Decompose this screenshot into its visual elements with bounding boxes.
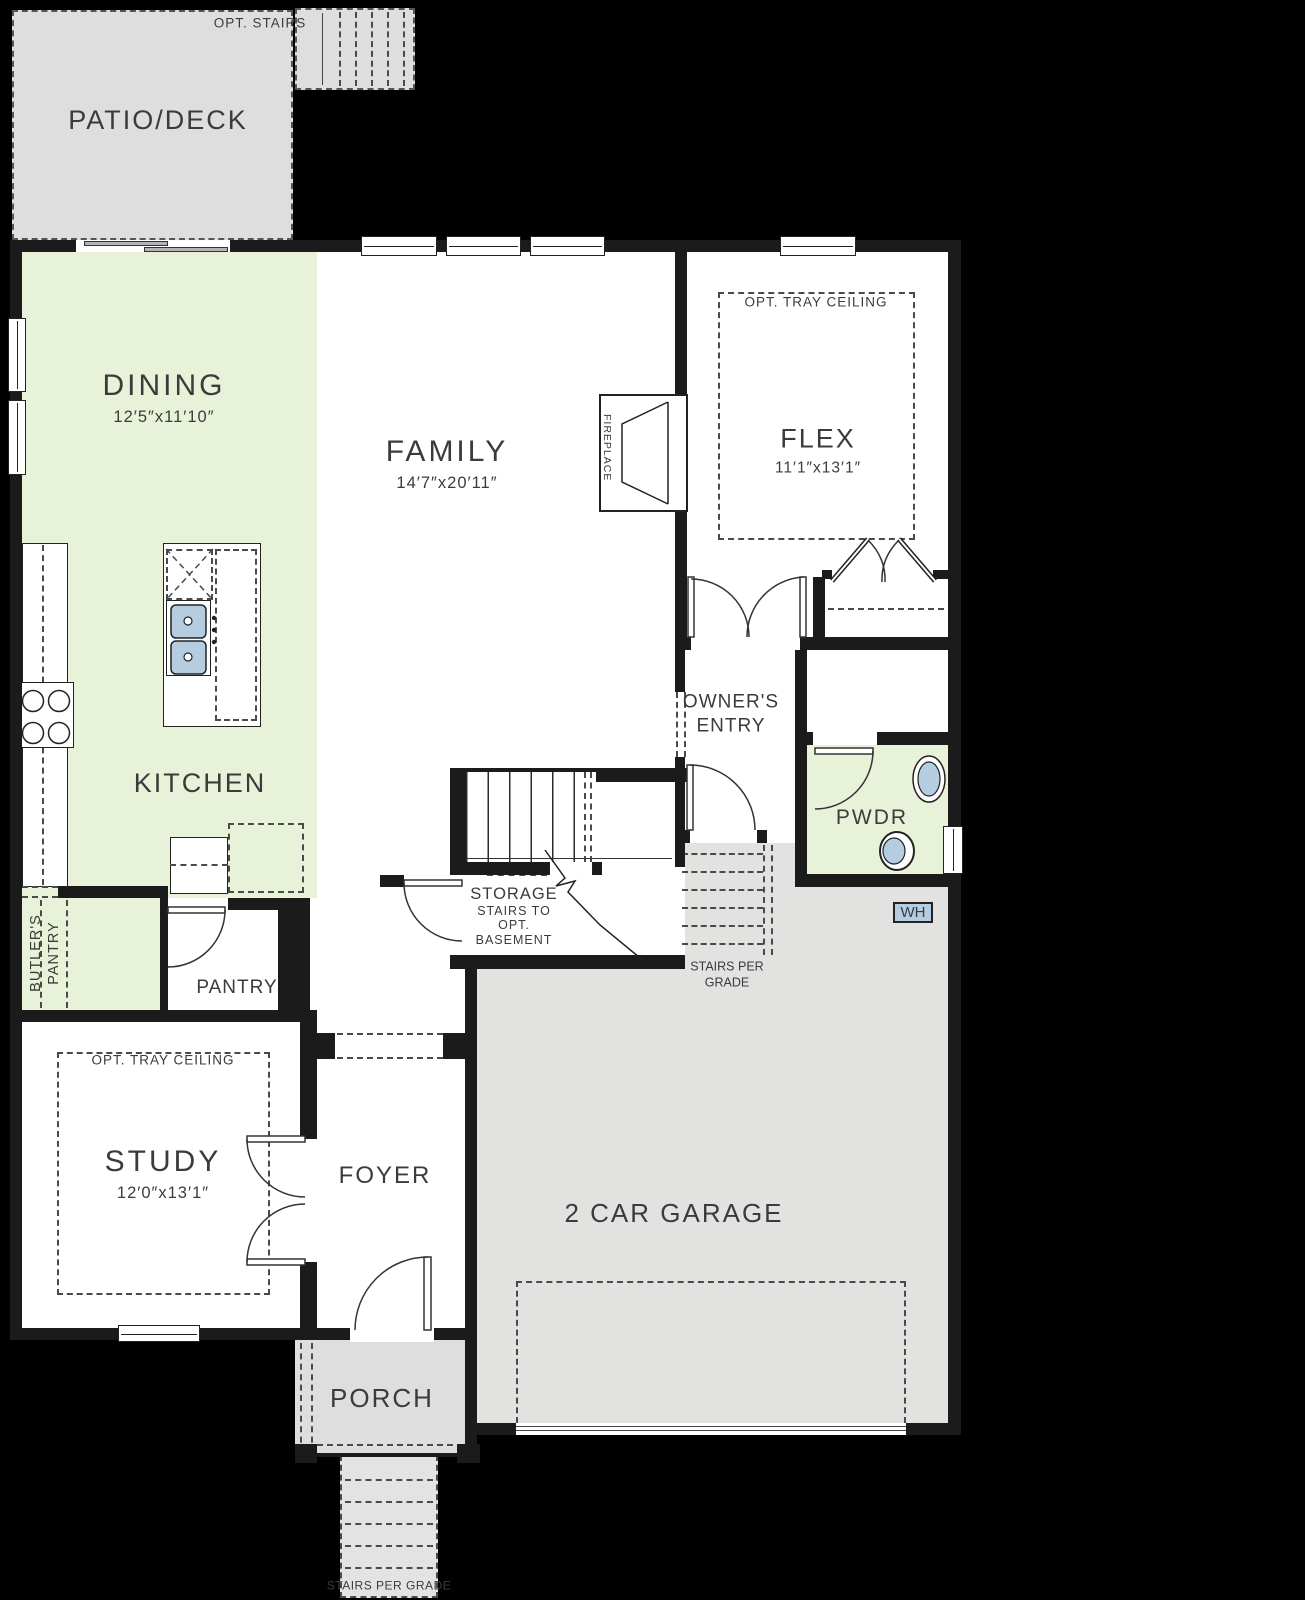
wall bbox=[822, 570, 832, 579]
garage-door-panel bbox=[516, 1426, 906, 1431]
pwdr-label: PWDR bbox=[836, 805, 908, 831]
window bbox=[8, 318, 26, 392]
patio-label: PATIO/DECK bbox=[68, 104, 248, 138]
garage-label: 2 CAR GARAGE bbox=[564, 1197, 783, 1230]
wall bbox=[800, 637, 948, 650]
floor-plan: WH bbox=[0, 0, 1305, 1600]
grade-stair-tread bbox=[682, 853, 763, 855]
garage-door-zone bbox=[516, 1281, 906, 1423]
grade-stair-tread bbox=[682, 943, 763, 945]
stair-stringer bbox=[322, 13, 323, 85]
wall bbox=[380, 875, 404, 887]
stair-tread bbox=[345, 1501, 433, 1503]
front-stairs-block bbox=[340, 1455, 438, 1598]
study-tray-label: OPT. TRAY CEILING bbox=[91, 1053, 234, 1070]
front-stairs-label: STAIRS PER GRADE bbox=[327, 1579, 451, 1594]
flex-tray-ceiling bbox=[718, 292, 915, 540]
cased-opening bbox=[22, 886, 58, 888]
kitchen-label: KITCHEN bbox=[134, 767, 267, 801]
grade-stair-tread bbox=[682, 907, 763, 909]
grade-stair-tread bbox=[682, 925, 763, 927]
porch-front-edge bbox=[295, 1453, 480, 1457]
stair-tread bbox=[387, 12, 389, 86]
stair-tread bbox=[355, 12, 357, 86]
wall bbox=[596, 768, 687, 782]
stair-tread bbox=[345, 1479, 433, 1481]
island-corner-cabinet bbox=[166, 549, 213, 600]
window bbox=[780, 236, 856, 256]
wall bbox=[675, 252, 687, 650]
cased-opening bbox=[676, 692, 678, 757]
cabinet-centerline bbox=[170, 864, 228, 866]
wall bbox=[466, 768, 596, 772]
water-heater: WH bbox=[893, 902, 933, 923]
refrigerator bbox=[228, 823, 304, 893]
wall bbox=[58, 886, 168, 898]
wall bbox=[675, 637, 691, 650]
stair-tread bbox=[345, 1545, 433, 1547]
wall bbox=[300, 1262, 317, 1328]
front-door-opening bbox=[350, 1326, 434, 1342]
window bbox=[361, 236, 437, 256]
basement-stair-treads bbox=[466, 772, 595, 862]
dining-label: DINING 12′5″x11′10″ bbox=[103, 367, 226, 427]
wall bbox=[675, 650, 685, 692]
grade-stair-tread bbox=[682, 889, 763, 891]
fireplace-label: FIREPLACE bbox=[601, 414, 613, 509]
closet-shelf bbox=[818, 608, 944, 610]
wall bbox=[450, 955, 685, 969]
stair-tread bbox=[339, 12, 341, 86]
porch-edge-line bbox=[311, 1343, 313, 1453]
stair-tread bbox=[403, 12, 405, 86]
sliding-door-panel bbox=[84, 241, 168, 246]
window bbox=[530, 236, 605, 256]
garage-floor-entry-strip bbox=[685, 843, 795, 955]
wall bbox=[795, 650, 807, 887]
pantry-label: PANTRY bbox=[196, 976, 277, 1000]
family-label: FAMILY 14′7″x20′11″ bbox=[386, 433, 508, 493]
porch-post bbox=[295, 1444, 317, 1463]
stair-direction-line bbox=[584, 772, 586, 862]
wall bbox=[450, 768, 466, 868]
stair-direction-line bbox=[590, 772, 592, 862]
water-heater-label: WH bbox=[901, 904, 926, 921]
stair-tread bbox=[371, 12, 373, 86]
owners-entry-label: OWNER'S ENTRY bbox=[683, 690, 779, 738]
opt-stairs-label: OPT. STAIRS bbox=[214, 16, 307, 33]
island-overhang bbox=[215, 549, 257, 721]
island-sink-unit bbox=[166, 600, 211, 676]
wall bbox=[278, 898, 310, 1010]
wall bbox=[465, 955, 477, 1463]
window bbox=[943, 826, 963, 874]
cased-opening bbox=[22, 896, 58, 898]
window bbox=[118, 1325, 200, 1342]
opt-stairs-block bbox=[295, 8, 415, 90]
wall bbox=[300, 1010, 317, 1139]
foyer-label: FOYER bbox=[339, 1161, 432, 1191]
basement-stair-gap bbox=[549, 862, 593, 875]
stair-tread bbox=[345, 1567, 433, 1569]
cased-opening bbox=[337, 1033, 443, 1035]
porch-edge-line bbox=[300, 1343, 302, 1453]
cooktop bbox=[18, 682, 74, 748]
study-label: STUDY 12′0″x13′1″ bbox=[105, 1143, 222, 1203]
flex-label: FLEX 11′1″x13′1″ bbox=[775, 422, 861, 477]
wall bbox=[317, 1033, 335, 1059]
grade-stair-rail bbox=[763, 845, 765, 955]
wall bbox=[10, 1010, 310, 1022]
flex-tray-label: OPT. TRAY CEILING bbox=[744, 295, 887, 312]
wall bbox=[443, 1033, 465, 1059]
pwdr-door-opening bbox=[813, 732, 877, 745]
grade-stair-rail bbox=[771, 845, 773, 955]
cased-opening bbox=[337, 1057, 443, 1059]
stair-landing-line bbox=[466, 858, 672, 859]
butlers-pantry-label: BUTLER'S PANTRY bbox=[27, 914, 63, 992]
window bbox=[8, 400, 26, 475]
wall bbox=[228, 898, 278, 910]
stair-tread bbox=[345, 1523, 433, 1525]
window bbox=[446, 236, 521, 256]
sliding-door-panel bbox=[144, 247, 228, 252]
porch-label: PORCH bbox=[330, 1382, 434, 1415]
garage-stairs-label: STAIRS PER GRADE bbox=[690, 959, 763, 990]
grade-stair-tread bbox=[682, 871, 763, 873]
wall bbox=[933, 570, 948, 579]
owners-entry-door-opening bbox=[690, 830, 757, 843]
butler-counter-line bbox=[66, 900, 68, 1008]
wall bbox=[160, 898, 168, 1010]
storage-label: STORAGE STAIRS TO OPT. BASEMENT bbox=[470, 885, 557, 947]
wall bbox=[813, 577, 825, 637]
porch-edge-line bbox=[297, 1444, 463, 1446]
wall bbox=[795, 874, 948, 887]
